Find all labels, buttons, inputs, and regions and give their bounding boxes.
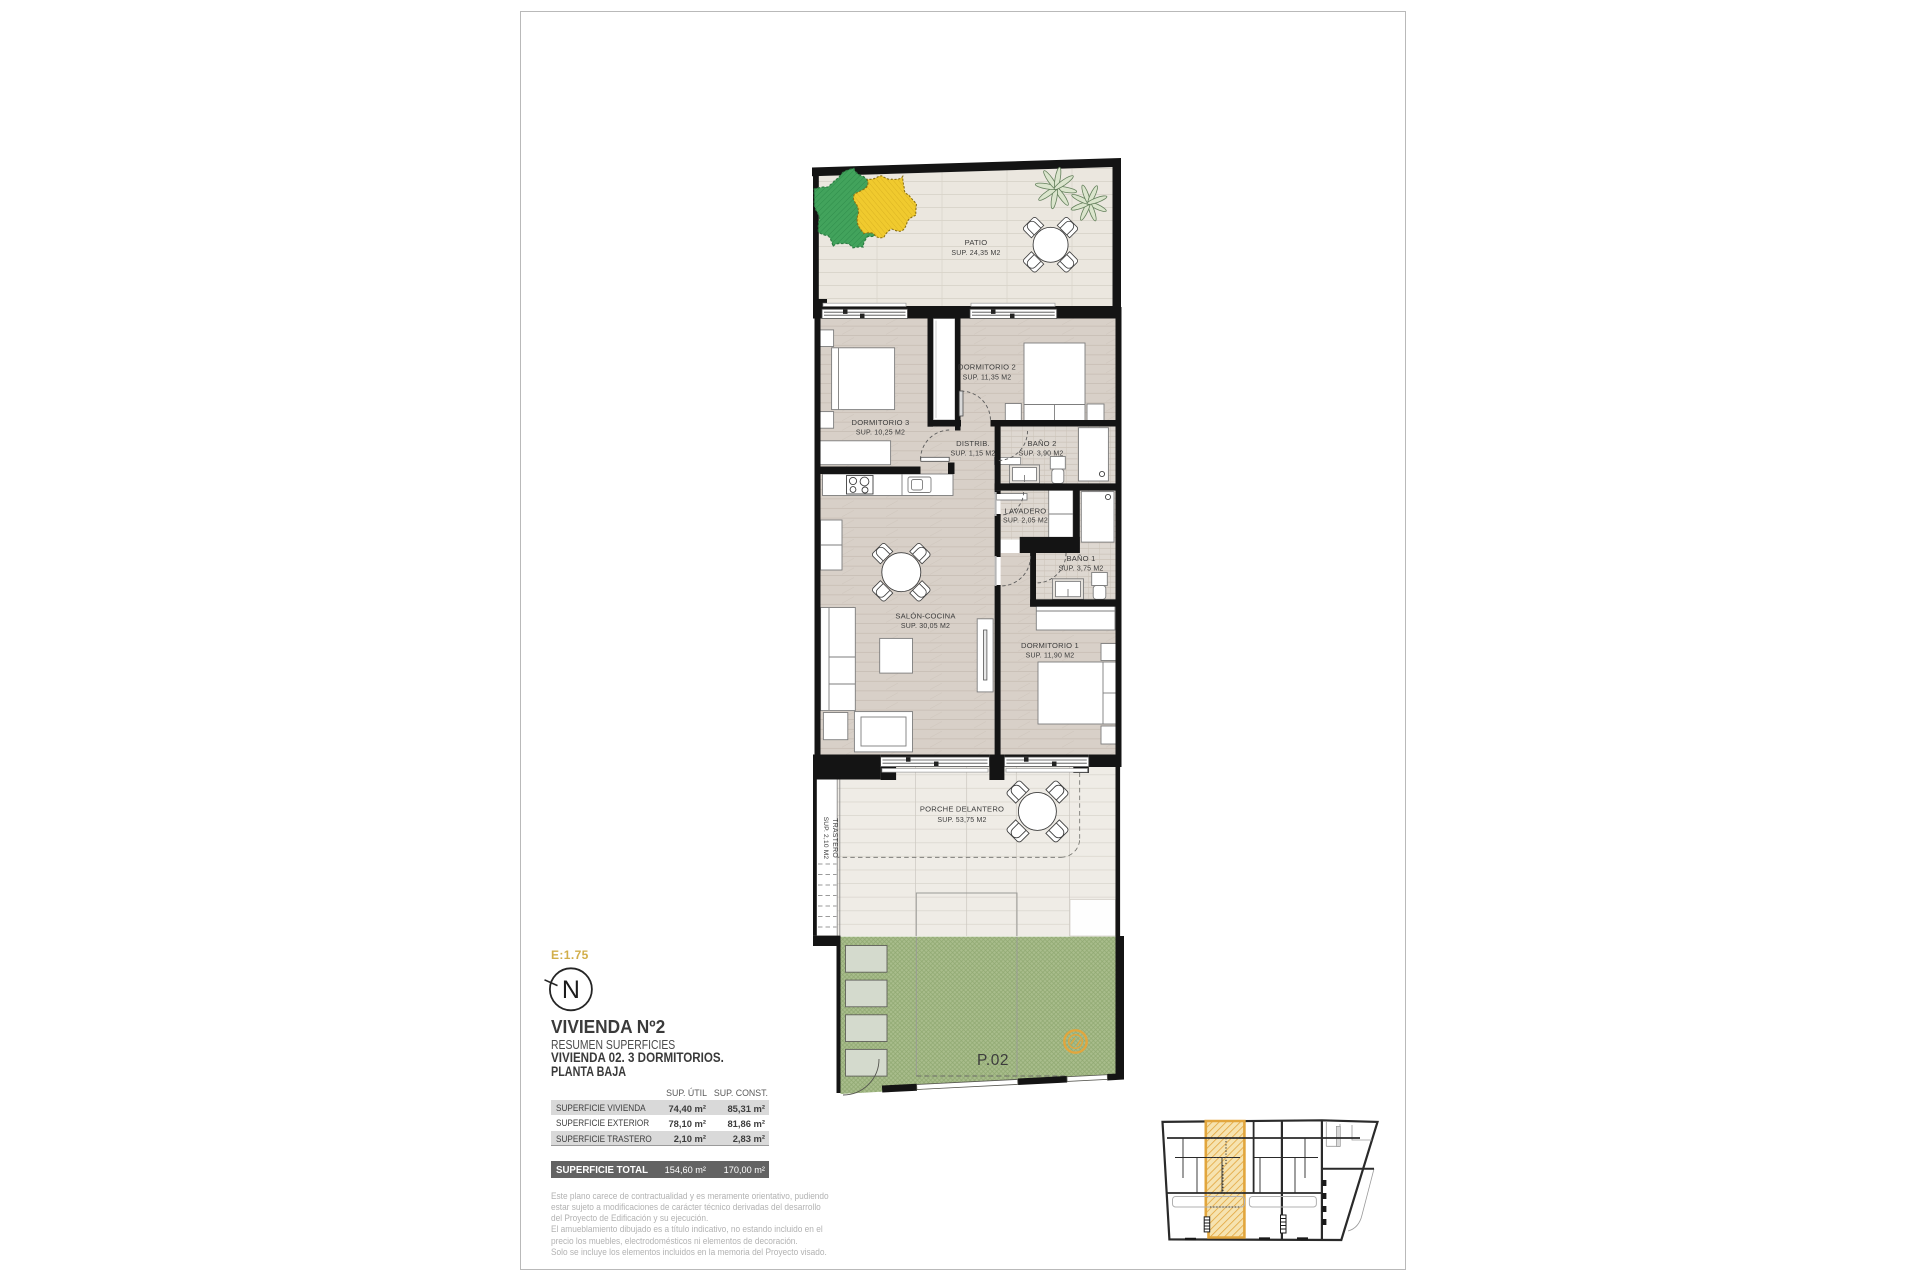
svg-text:SUP. 11,35 M2: SUP. 11,35 M2 <box>963 375 1012 382</box>
svg-text:DORMITORIO 2: DORMITORIO 2 <box>958 363 1016 372</box>
svg-text:P.02: P.02 <box>977 1052 1009 1069</box>
svg-text:SUP. 2,10 M2: SUP. 2,10 M2 <box>822 817 829 860</box>
svg-text:SUP. 10,25 M2: SUP. 10,25 M2 <box>856 430 905 437</box>
svg-text:DORMITORIO 3: DORMITORIO 3 <box>852 418 910 427</box>
svg-text:DISTRIB.: DISTRIB. <box>956 439 990 448</box>
svg-text:BAÑO 1: BAÑO 1 <box>1066 554 1095 563</box>
svg-text:SUP. 30,05 M2: SUP. 30,05 M2 <box>901 623 950 630</box>
svg-text:TRASTERO: TRASTERO <box>831 818 838 858</box>
svg-text:SUP. 3,90 M2: SUP. 3,90 M2 <box>1018 451 1063 458</box>
svg-text:SUP. 53,75 M2: SUP. 53,75 M2 <box>937 817 986 824</box>
svg-text:BAÑO 2: BAÑO 2 <box>1027 439 1056 448</box>
svg-text:N: N <box>562 976 580 1004</box>
svg-text:DORMITORIO 1: DORMITORIO 1 <box>1021 641 1079 650</box>
svg-text:LAVADERO: LAVADERO <box>1005 507 1047 516</box>
svg-text:SUP. 3,75 M2: SUP. 3,75 M2 <box>1058 566 1103 573</box>
svg-text:SUP. 1,15 M2: SUP. 1,15 M2 <box>950 451 995 458</box>
svg-text:SUP. 11,90 M2: SUP. 11,90 M2 <box>1026 653 1075 660</box>
svg-text:PATIO: PATIO <box>965 238 988 247</box>
svg-text:PORCHE DELANTERO: PORCHE DELANTERO <box>920 805 1004 814</box>
svg-text:SALÓN-COCINA: SALÓN-COCINA <box>895 612 956 621</box>
svg-text:SUP. 24,35 M2: SUP. 24,35 M2 <box>951 250 1000 257</box>
svg-text:SUP. 2,05 M2: SUP. 2,05 M2 <box>1003 518 1048 525</box>
